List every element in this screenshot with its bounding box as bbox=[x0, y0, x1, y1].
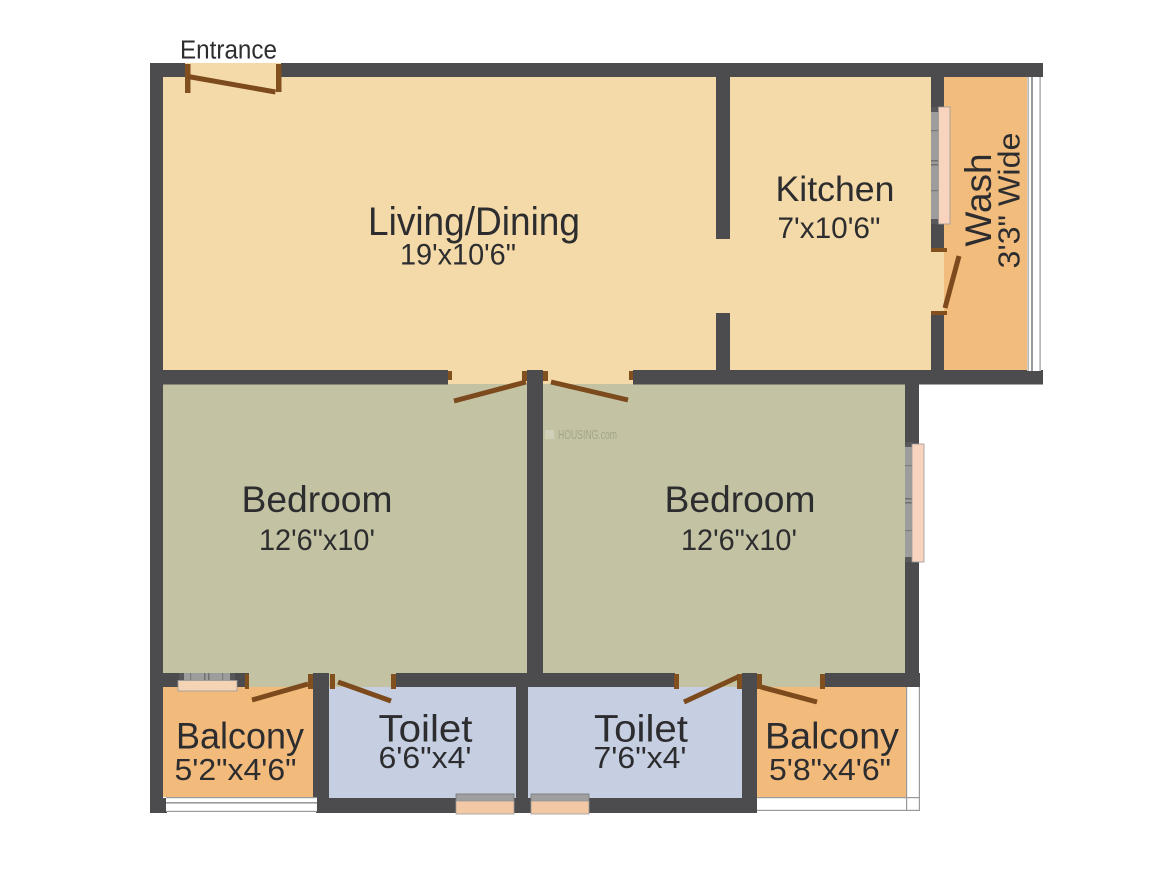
svg-text:Balcony: Balcony bbox=[176, 716, 304, 757]
svg-text:Bedroom: Bedroom bbox=[242, 479, 393, 520]
svg-text:Entrance: Entrance bbox=[180, 37, 277, 65]
svg-text:Balcony: Balcony bbox=[765, 716, 900, 757]
svg-text:Living/Dining: Living/Dining bbox=[368, 200, 580, 244]
svg-text:HOUSING.com: HOUSING.com bbox=[558, 427, 617, 442]
svg-text:3'3" Wide: 3'3" Wide bbox=[993, 133, 1027, 269]
svg-text:7'6"x4': 7'6"x4' bbox=[594, 740, 687, 775]
svg-text:7'x10'6": 7'x10'6" bbox=[778, 212, 881, 245]
svg-text:12'6"x10': 12'6"x10' bbox=[681, 524, 797, 557]
svg-text:6'6"x4': 6'6"x4' bbox=[379, 740, 472, 775]
svg-text:12'6"x10': 12'6"x10' bbox=[259, 524, 375, 557]
svg-text:5'8"x4'6": 5'8"x4'6" bbox=[769, 752, 891, 787]
svg-text:5'2"x4'6": 5'2"x4'6" bbox=[175, 752, 297, 787]
svg-text:Kitchen: Kitchen bbox=[776, 170, 895, 209]
svg-text:19'x10'6": 19'x10'6" bbox=[400, 239, 516, 272]
svg-text:Bedroom: Bedroom bbox=[665, 479, 816, 520]
